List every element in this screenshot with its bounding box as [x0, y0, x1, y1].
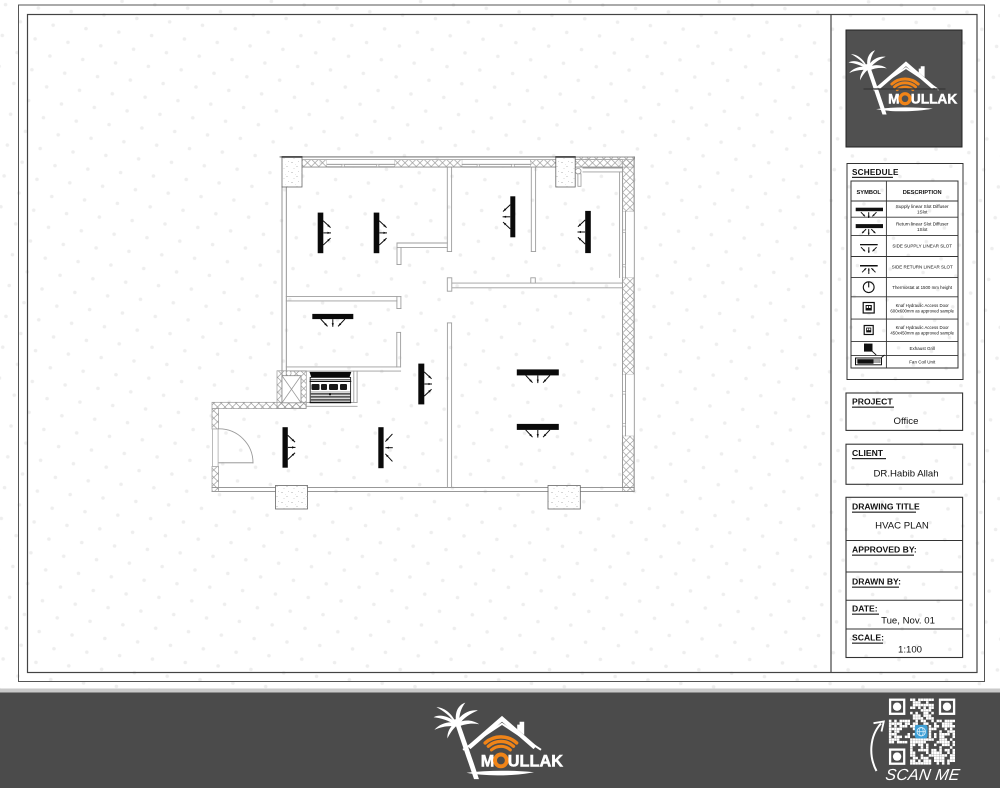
- svg-text:Tue, Nov. 01: Tue, Nov. 01: [881, 616, 935, 627]
- svg-text:SYMBOL: SYMBOL: [857, 190, 882, 196]
- svg-text:Knaf Hydraulic Access Door: Knaf Hydraulic Access Door: [896, 325, 950, 330]
- svg-text:Fan Coil Unit: Fan Coil Unit: [909, 359, 936, 364]
- svg-text:Knaf Hydraulic Access Door: Knaf Hydraulic Access Door: [896, 303, 950, 308]
- svg-text:PROJECT: PROJECT: [852, 397, 893, 407]
- svg-text:DRAWN BY:: DRAWN BY:: [852, 577, 901, 587]
- svg-text:APPROVED BY:: APPROVED BY:: [852, 545, 917, 555]
- svg-text:Supply linear Slot Diffuser: Supply linear Slot Diffuser: [896, 204, 949, 209]
- svg-text:Office: Office: [894, 416, 919, 427]
- svg-text:600x600mm as approved sample: 600x600mm as approved sample: [890, 308, 954, 313]
- svg-text:450x450mm as approved sample: 450x450mm as approved sample: [890, 331, 954, 336]
- svg-text:DR.Habib Allah: DR.Habib Allah: [873, 469, 938, 480]
- svg-text:SCALE:: SCALE:: [852, 633, 884, 643]
- svg-text:1Slot: 1Slot: [917, 227, 928, 232]
- svg-text:DRAWING TITLE: DRAWING TITLE: [852, 502, 920, 512]
- svg-text:SIDE RETURN LINEAR SLOT: SIDE RETURN LINEAR SLOT: [892, 265, 953, 270]
- svg-text:HVAC PLAN: HVAC PLAN: [875, 521, 929, 532]
- svg-text:Exhaust Grill: Exhaust Grill: [909, 346, 935, 351]
- svg-text:DATE:: DATE:: [852, 604, 878, 614]
- svg-text:Return linear Slot Diffuser: Return linear Slot Diffuser: [896, 221, 949, 226]
- svg-text:SIDE SUPPLY LINEAR SLOT: SIDE SUPPLY LINEAR SLOT: [892, 244, 952, 249]
- svg-text:1:100: 1:100: [898, 645, 922, 656]
- svg-text:1Slot: 1Slot: [917, 210, 928, 215]
- svg-text:SCAN ME: SCAN ME: [884, 766, 961, 784]
- svg-text:DESCRIPTION: DESCRIPTION: [903, 190, 942, 196]
- svg-text:SCHEDULE: SCHEDULE: [852, 168, 899, 177]
- svg-text:Thermostat at 1500 mm height: Thermostat at 1500 mm height: [892, 285, 953, 290]
- svg-text:CLIENT: CLIENT: [852, 448, 884, 458]
